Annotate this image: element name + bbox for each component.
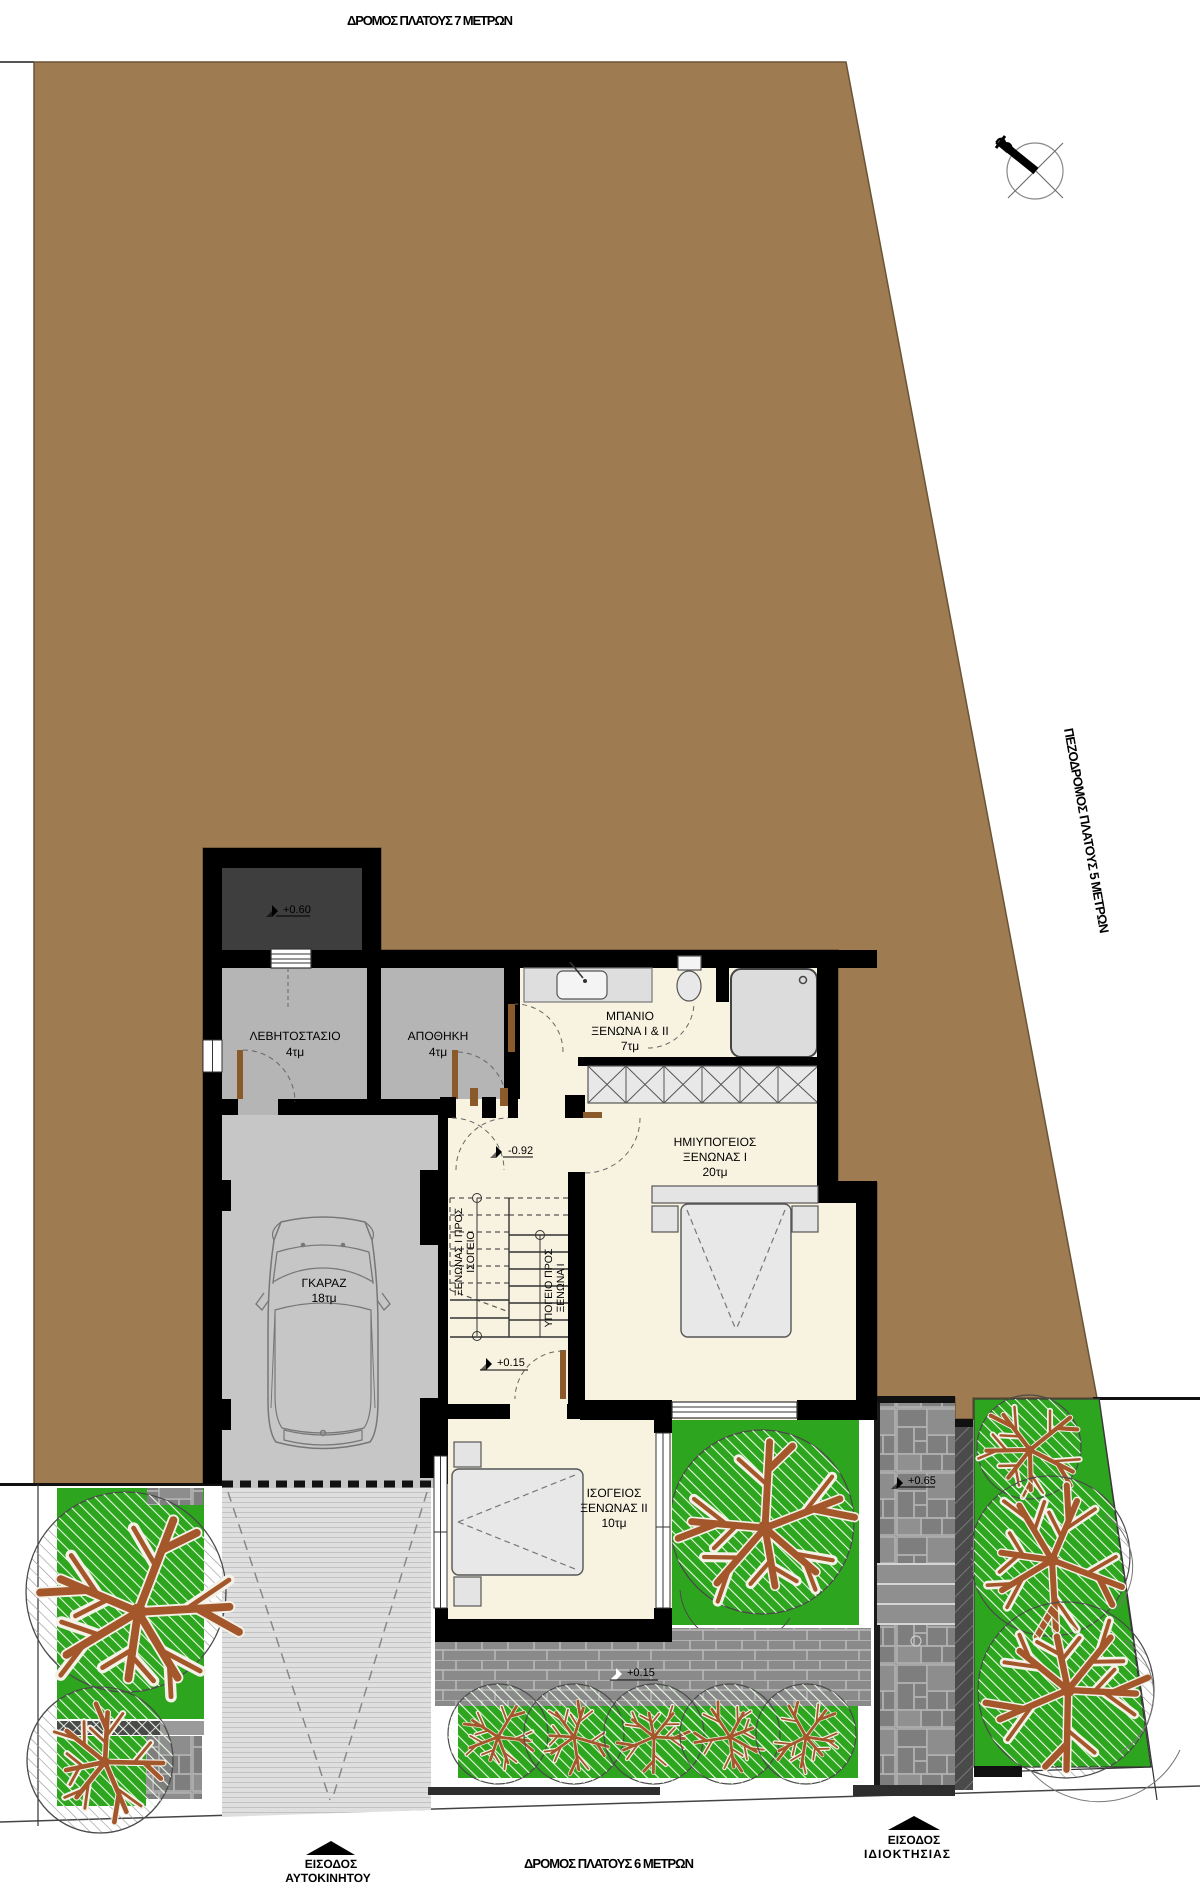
svg-text:7τμ: 7τμ bbox=[621, 1039, 639, 1053]
svg-text:ΑΠΟΘΗΚΗ: ΑΠΟΘΗΚΗ bbox=[408, 1029, 469, 1043]
svg-text:ΕΙΣΟΔΟΣ: ΕΙΣΟΔΟΣ bbox=[888, 1833, 940, 1847]
svg-text:ΥΠΟΓΕΙΟ ΠΡΟΣ: ΥΠΟΓΕΙΟ ΠΡΟΣ bbox=[543, 1248, 555, 1327]
svg-text:ΙΣΟΓΕΙΟ: ΙΣΟΓΕΙΟ bbox=[465, 1231, 477, 1272]
svg-text:+0.15: +0.15 bbox=[497, 1357, 525, 1369]
svg-text:ΞΕΝΩΝΑΣ ΙΙ: ΞΕΝΩΝΑΣ ΙΙ bbox=[580, 1501, 648, 1515]
svg-text:+0.65: +0.65 bbox=[908, 1475, 936, 1487]
svg-text:ΓΚΑΡΑΖ: ΓΚΑΡΑΖ bbox=[301, 1276, 346, 1290]
svg-text:-0.92: -0.92 bbox=[508, 1145, 533, 1157]
svg-text:ΗΜΙΥΠΟΓΕΙΟΣ: ΗΜΙΥΠΟΓΕΙΟΣ bbox=[674, 1135, 757, 1149]
svg-text:ΞΕΝΩΝΑ Ι & ΙΙ: ΞΕΝΩΝΑ Ι & ΙΙ bbox=[591, 1024, 668, 1038]
svg-text:ΞΕΝΩΝΑΣ Ι ΠΡΟΣ: ΞΕΝΩΝΑΣ Ι ΠΡΟΣ bbox=[453, 1207, 465, 1296]
svg-text:4τμ: 4τμ bbox=[429, 1045, 447, 1059]
svg-text:ΞΕΝΩΝΑΣ Ι: ΞΕΝΩΝΑΣ Ι bbox=[683, 1150, 747, 1164]
svg-text:20τμ: 20τμ bbox=[702, 1165, 727, 1179]
svg-text:+0.15: +0.15 bbox=[627, 1667, 655, 1679]
svg-text:ΞΕΝΩΝΑ Ι: ΞΕΝΩΝΑ Ι bbox=[555, 1263, 567, 1312]
svg-text:+0.60: +0.60 bbox=[283, 904, 311, 916]
svg-text:10τμ: 10τμ bbox=[601, 1516, 626, 1530]
svg-text:ΜΠΑΝΙΟ: ΜΠΑΝΙΟ bbox=[606, 1009, 654, 1023]
svg-text:18τμ: 18τμ bbox=[311, 1291, 336, 1305]
svg-text:ΙΔΙΟΚΤΗΣΙΑΣ: ΙΔΙΟΚΤΗΣΙΑΣ bbox=[864, 1847, 950, 1861]
svg-text:ΑΥΤΟΚΙΝΗΤΟΥ: ΑΥΤΟΚΙΝΗΤΟΥ bbox=[285, 1871, 370, 1885]
svg-text:ΕΙΣΟΔΟΣ: ΕΙΣΟΔΟΣ bbox=[305, 1857, 357, 1871]
svg-text:4τμ: 4τμ bbox=[286, 1045, 304, 1059]
svg-text:ΔΡΟΜΟΣ ΠΛΑΤΟΥΣ 6 ΜΕΤΡΩΝ: ΔΡΟΜΟΣ ΠΛΑΤΟΥΣ 6 ΜΕΤΡΩΝ bbox=[524, 1856, 694, 1871]
svg-text:ΛΕΒΗΤΟΣΤΑΣΙΟ: ΛΕΒΗΤΟΣΤΑΣΙΟ bbox=[249, 1029, 340, 1043]
svg-text:ΔΡΟΜΟΣ ΠΛΑΤΟΥΣ 7 ΜΕΤΡΩΝ: ΔΡΟΜΟΣ ΠΛΑΤΟΥΣ 7 ΜΕΤΡΩΝ bbox=[347, 13, 513, 28]
svg-text:ΙΣΟΓΕΙΟΣ: ΙΣΟΓΕΙΟΣ bbox=[587, 1486, 642, 1500]
